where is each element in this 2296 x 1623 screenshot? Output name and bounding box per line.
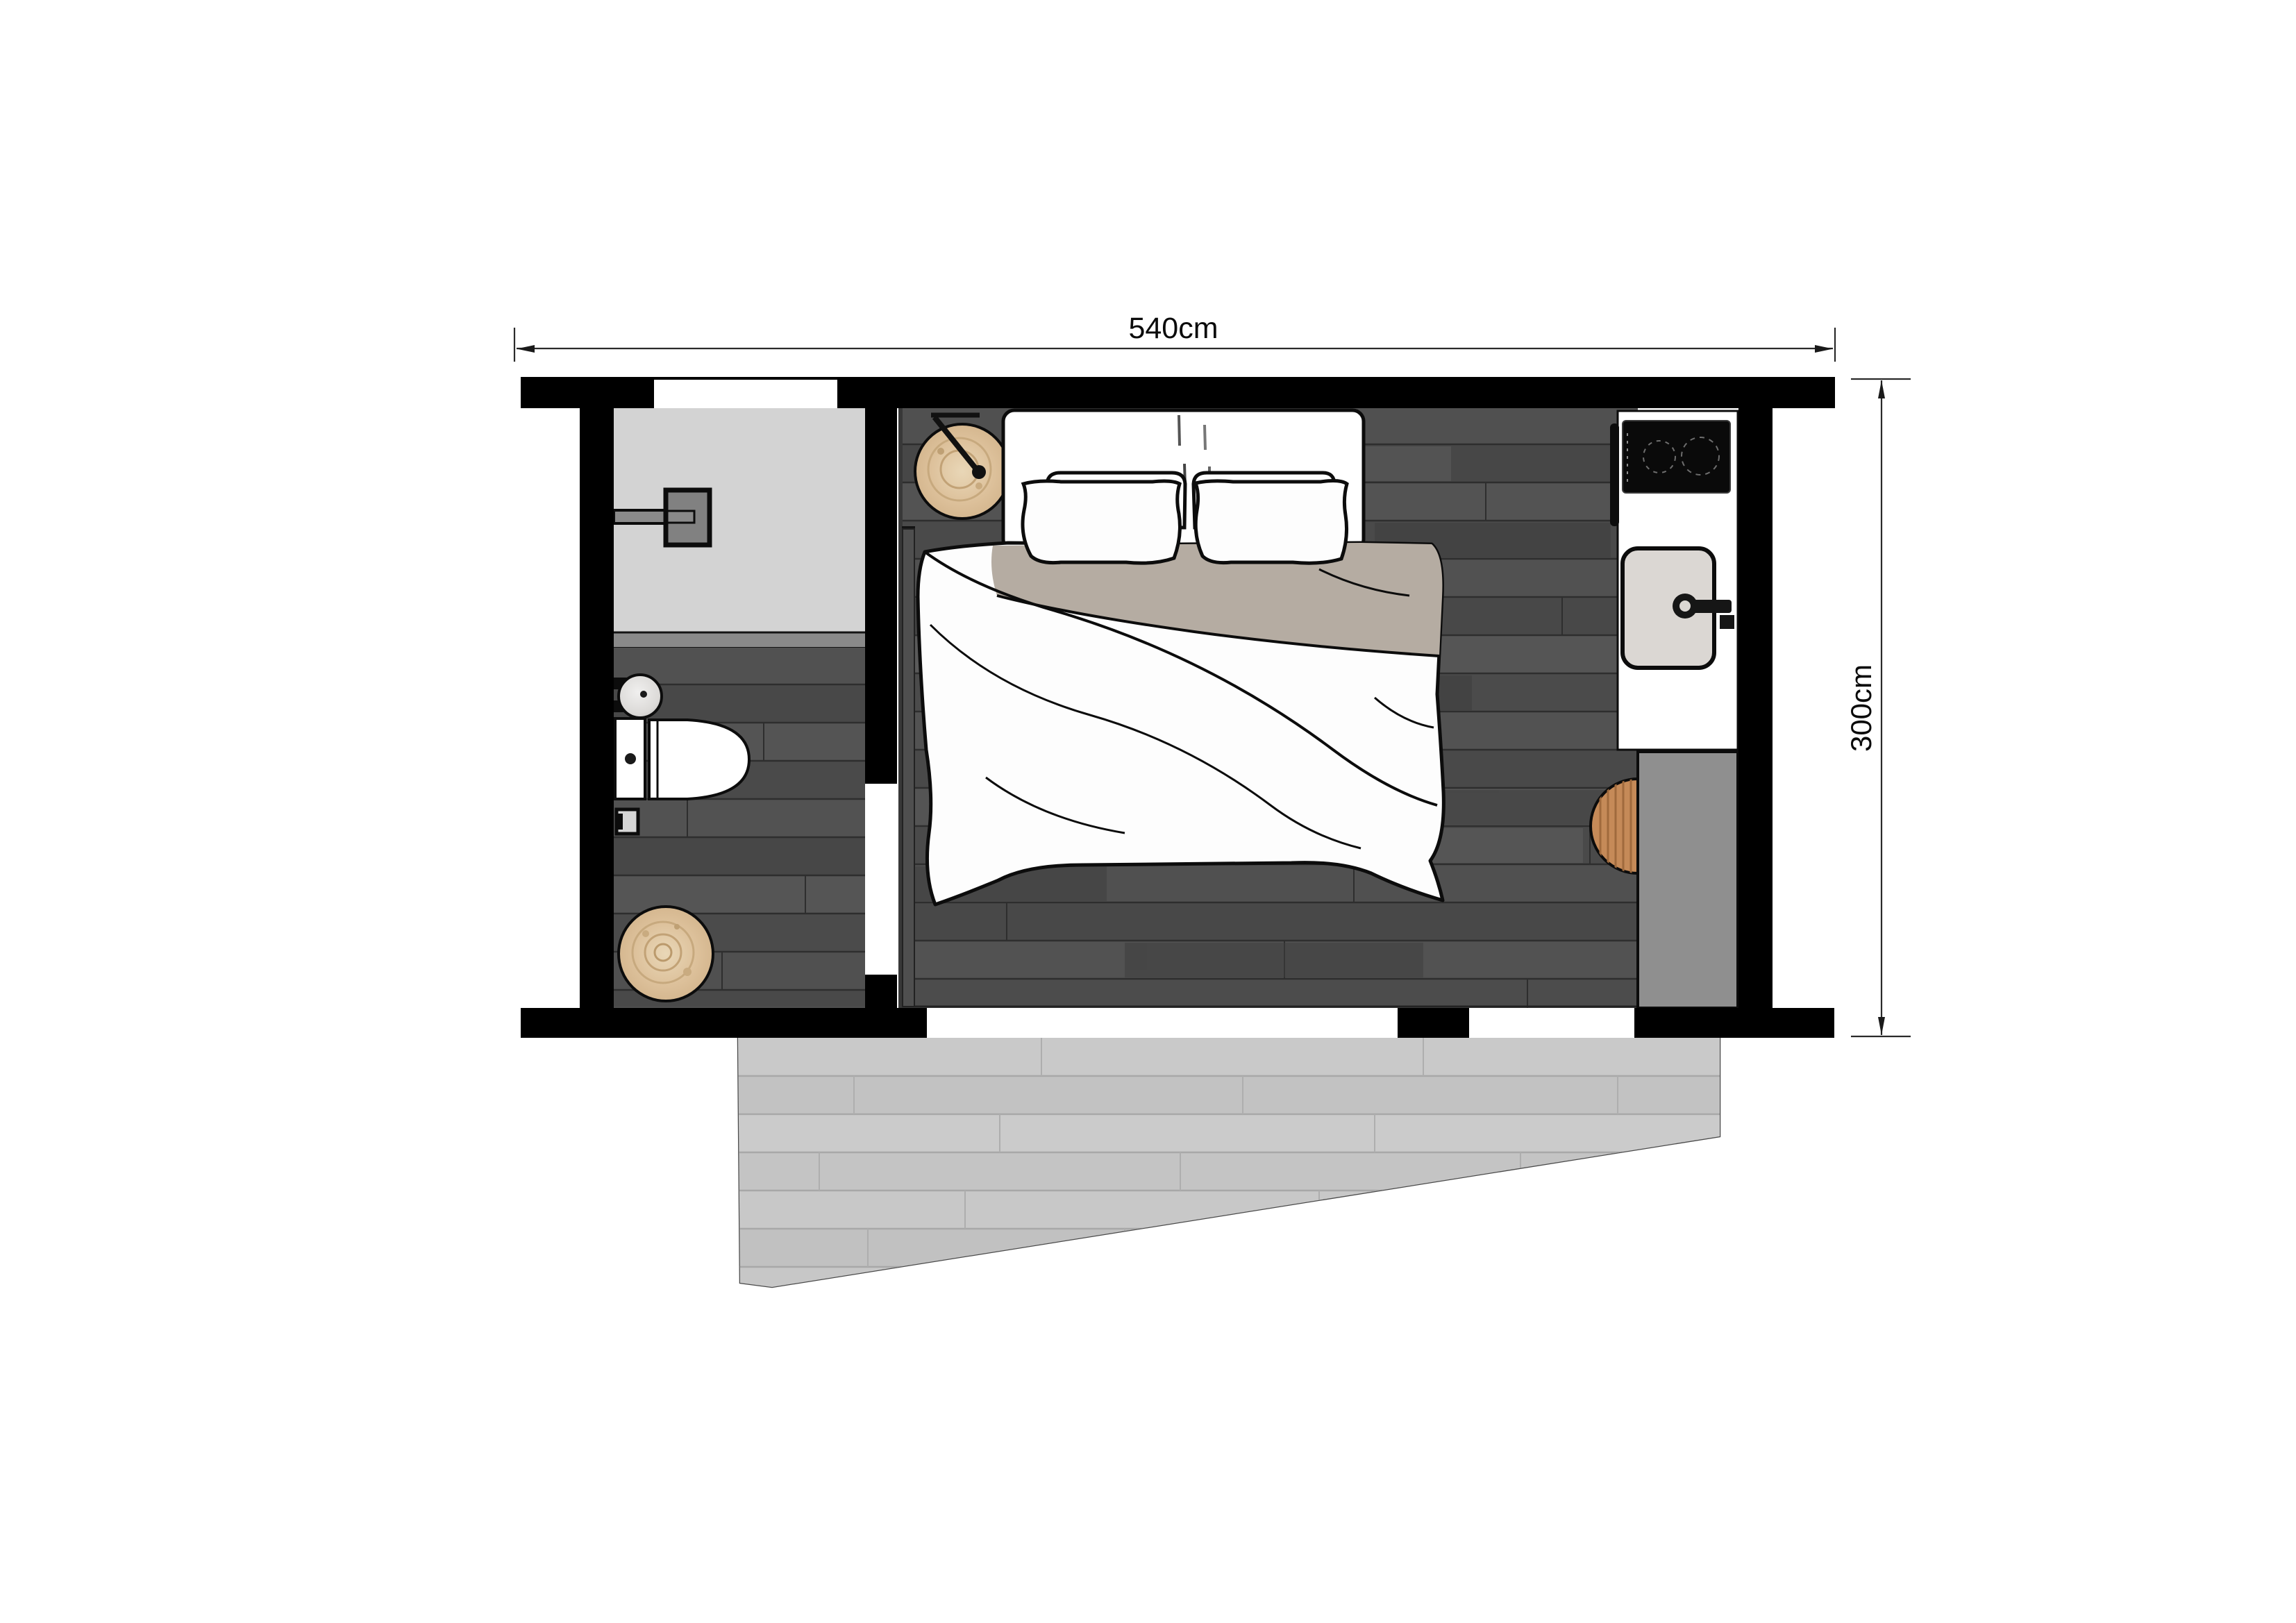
svg-text:540cm: 540cm: [1128, 312, 1218, 345]
svg-text:300cm: 300cm: [1845, 664, 1877, 752]
